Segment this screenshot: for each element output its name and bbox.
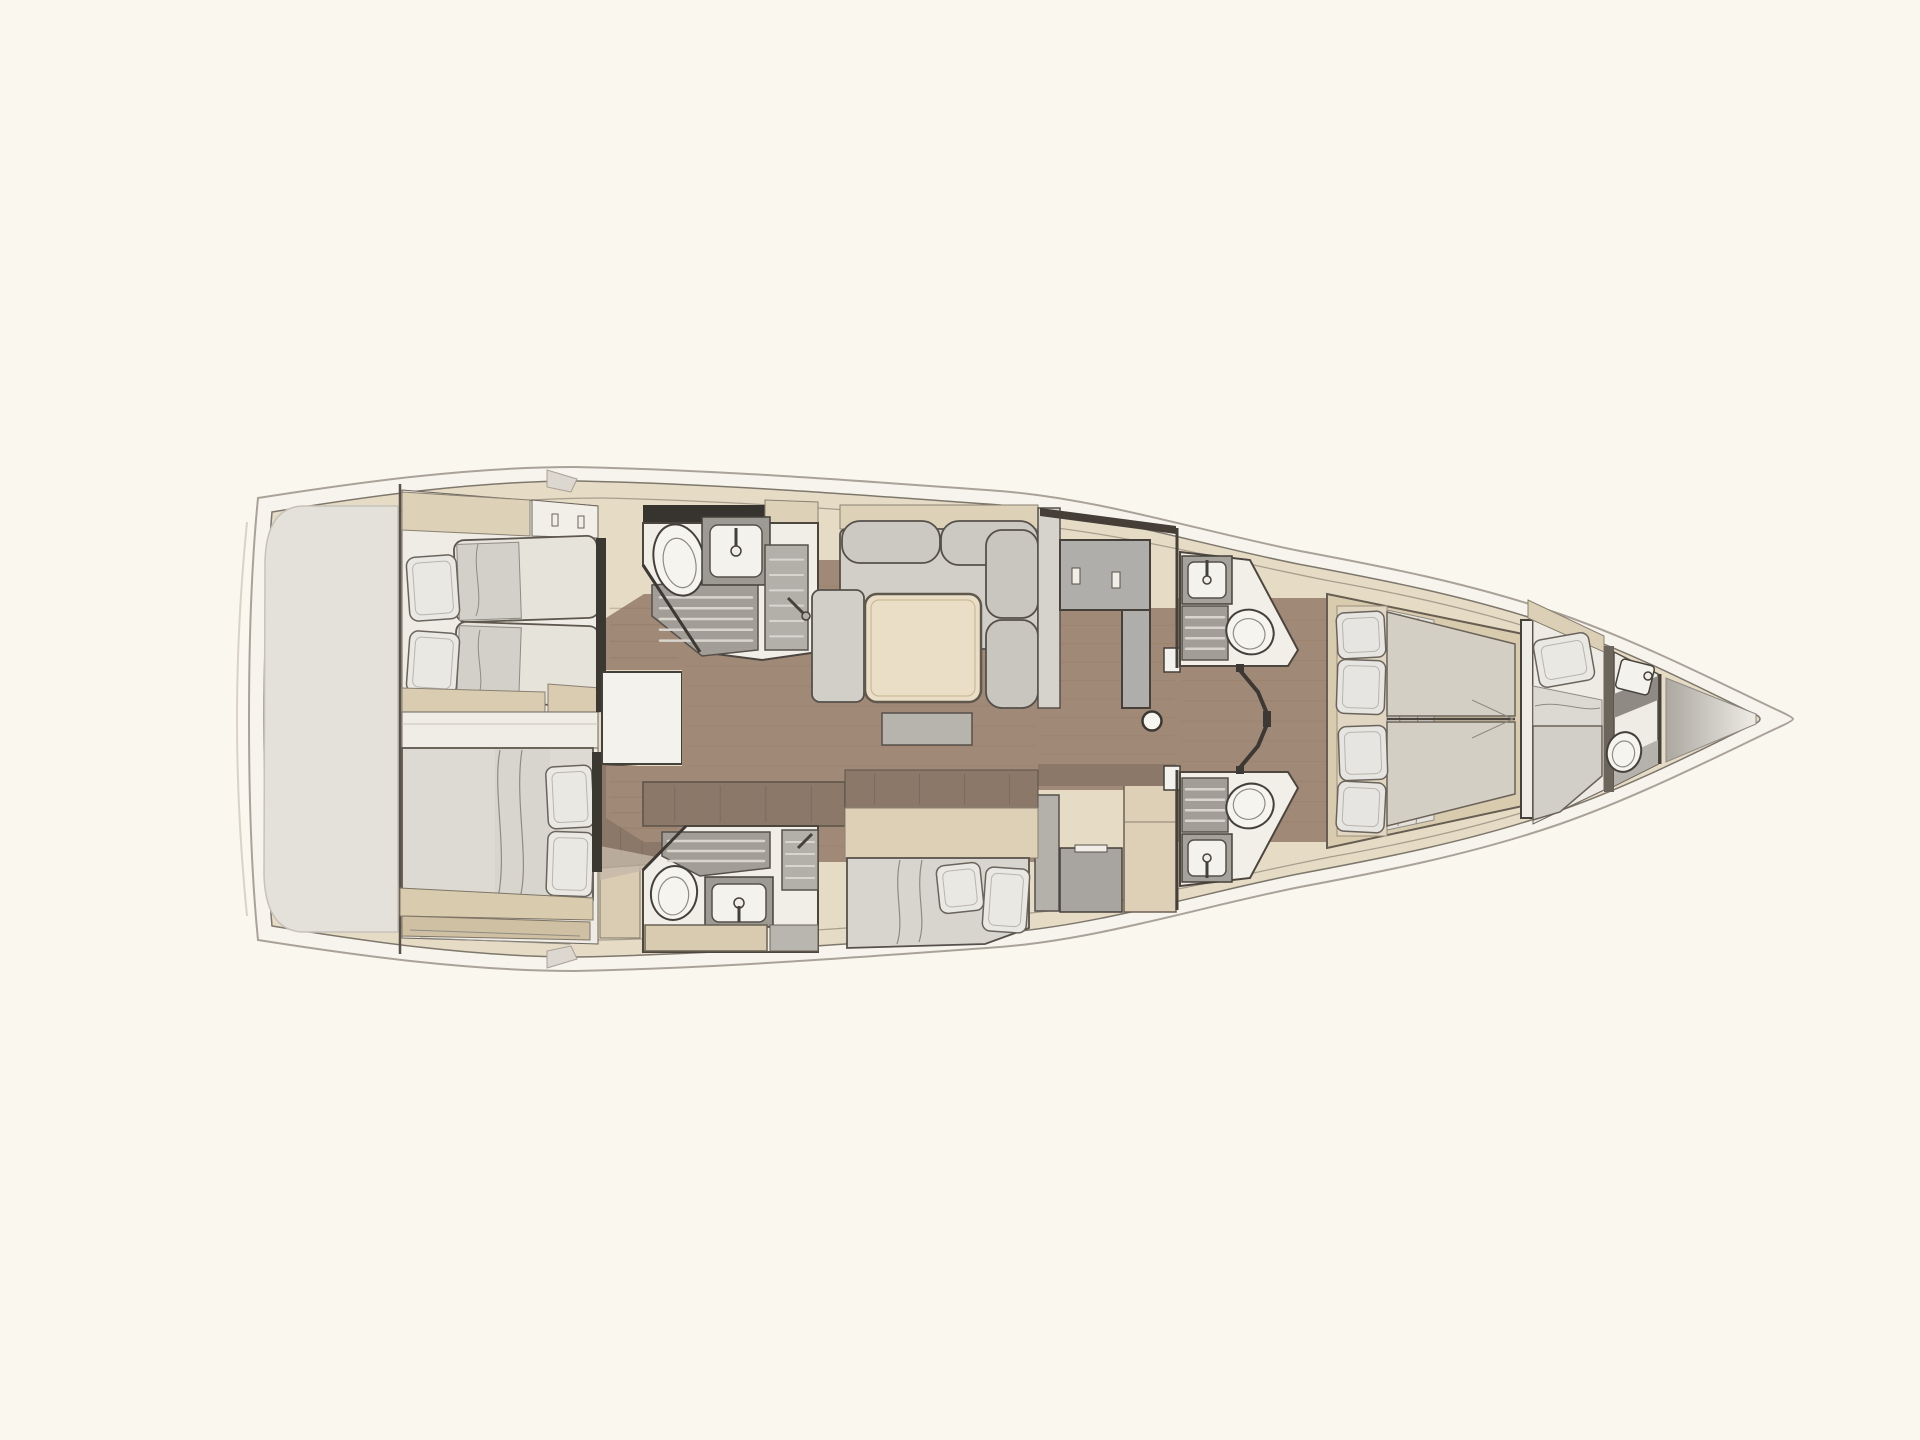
aft-port-lockers (402, 492, 530, 536)
aft-port-wardrobe (532, 500, 598, 538)
berth-blanket (457, 542, 522, 620)
shower-mixer-knob (802, 612, 810, 620)
transom-outer-line (237, 522, 247, 916)
mast-post (1143, 712, 1162, 731)
galley-locker (1035, 795, 1059, 911)
galley-handle (1112, 572, 1120, 588)
shower-grate (1182, 778, 1228, 832)
salon-cabinet (1038, 508, 1060, 708)
cockpit-footwell-wall (643, 782, 845, 826)
sofa-chaise (812, 590, 864, 702)
owner-cabin-bulkhead (1521, 620, 1533, 818)
owner-pillow (1338, 725, 1388, 781)
settee-pillow (982, 867, 1030, 934)
settee-shelf (845, 808, 1038, 858)
galley-handle-bar (1075, 845, 1107, 852)
vanity-drawer (645, 925, 767, 951)
galley-tall-cabinet (1124, 785, 1176, 912)
shower-bench (782, 830, 818, 890)
door-hinge (1263, 711, 1271, 719)
cabin-partition (402, 712, 598, 748)
galley-wall-band (1038, 764, 1176, 786)
stern-garage (264, 506, 398, 932)
door-hinge (1236, 766, 1244, 774)
galley-counter-arm (1122, 610, 1150, 708)
floor-plan-svg (0, 0, 1920, 1440)
floor-plan-shapes (237, 467, 1793, 971)
owner-pillow (1336, 659, 1386, 715)
head-step (770, 925, 818, 951)
door-hinge (1236, 664, 1244, 672)
cabin-shelf (548, 684, 600, 712)
faucet-knob (1203, 854, 1211, 862)
sofa-back-cushion (842, 521, 940, 563)
bulkhead-post (592, 752, 602, 872)
yacht-floor-plan-page (0, 0, 1920, 1440)
faucet-knob (1644, 672, 1652, 680)
shower-grate (1182, 606, 1228, 660)
engine-box-landing (602, 672, 682, 764)
berth-blanket (457, 626, 521, 700)
sofa-side-cushion (986, 530, 1038, 618)
coffee-table (882, 713, 972, 745)
faucet-knob (731, 546, 741, 556)
galley-cabinet (1060, 848, 1122, 912)
door-hinge (1263, 719, 1271, 727)
crew-pillow (1532, 632, 1595, 689)
salon-table (865, 594, 981, 702)
aft-head-top-shelf (765, 500, 818, 523)
shower-bench (765, 545, 808, 650)
galley-handle (1072, 568, 1080, 584)
crew-bulkhead (1604, 646, 1614, 792)
sofa-side-cushion (986, 620, 1038, 708)
faucet-knob (1203, 576, 1211, 584)
